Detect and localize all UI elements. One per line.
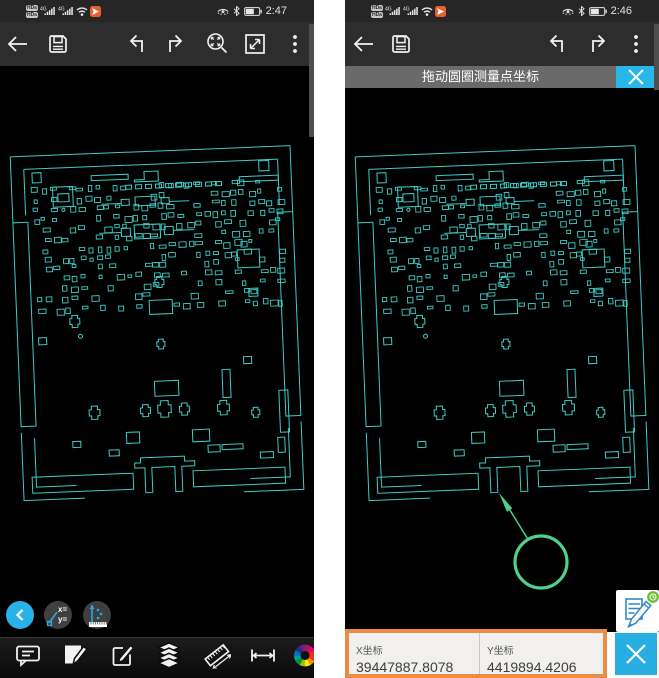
svg-text:4G: 4G xyxy=(40,7,47,13)
svg-text:x=: x= xyxy=(58,605,67,614)
svg-text:4G: 4G xyxy=(403,7,410,13)
svg-text:4G: 4G xyxy=(58,7,65,13)
svg-text:y=: y= xyxy=(58,615,67,624)
svg-text:4G: 4G xyxy=(385,7,392,13)
